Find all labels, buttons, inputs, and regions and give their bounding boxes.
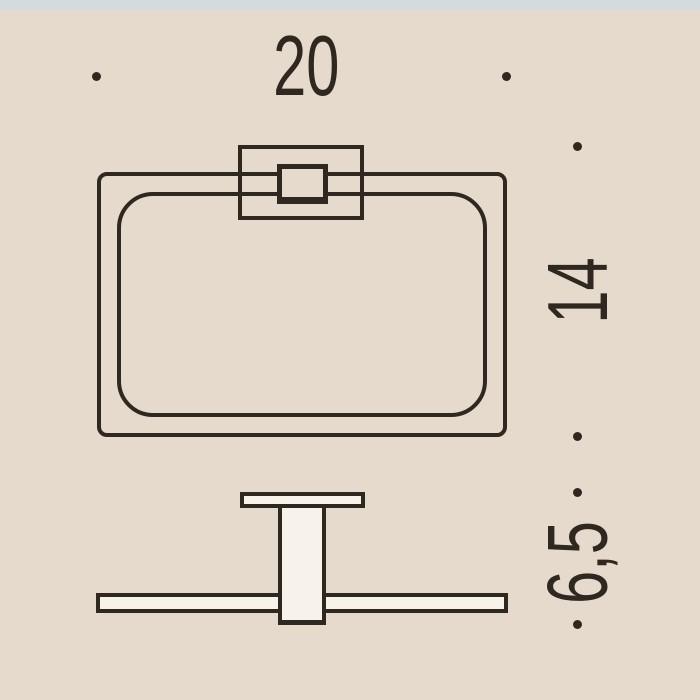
dim-dot-height-top (573, 142, 582, 151)
dim-label-height-text: 14 (535, 257, 620, 323)
top-strip (0, 0, 700, 10)
dim-dot-height-bottom (573, 432, 582, 441)
dim-dot-width-right (502, 72, 511, 81)
dim-label-depth-text: 6,5 (535, 521, 620, 604)
front-clamp-square (277, 164, 328, 204)
dim-label-height: 14 (508, 220, 648, 360)
dim-label-width-text: 20 (273, 24, 339, 109)
ring-inner-outline (117, 192, 487, 417)
dim-label-width: 20 (226, 20, 386, 112)
side-post (278, 504, 326, 625)
dim-label-depth: 6,5 (508, 492, 648, 632)
dim-dot-width-left (92, 72, 101, 81)
product-dimension-drawing: 20 14 6,5 (0, 0, 700, 700)
side-wall-plate (240, 492, 365, 508)
